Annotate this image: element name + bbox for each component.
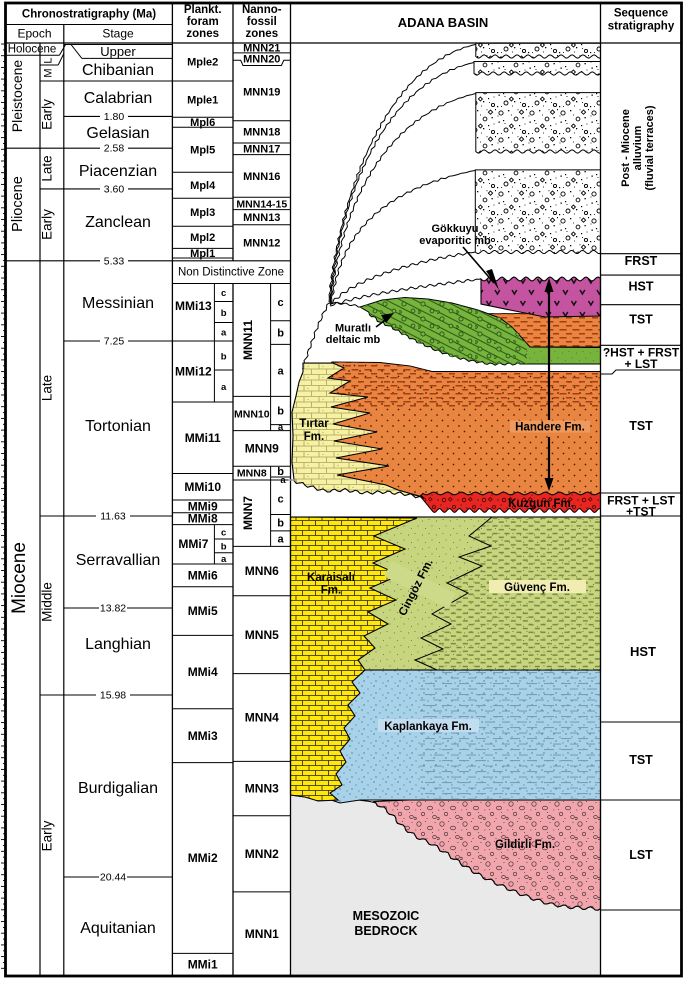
svg-text:zones: zones [246,28,279,40]
svg-text:MNN18: MNN18 [243,127,280,139]
svg-text:MMi6: MMi6 [188,569,218,583]
svg-text:Pliocene: Pliocene [10,176,26,232]
svg-text:MMi8: MMi8 [188,512,218,526]
svg-text:Handere Fm.: Handere Fm. [515,422,585,434]
svg-text:MNN20: MNN20 [243,54,280,66]
svg-text:Muratlı: Muratlı [335,323,371,335]
svg-text:c: c [278,297,284,309]
svg-text:MMi10: MMi10 [184,480,221,494]
svg-text:3.60: 3.60 [104,183,125,195]
svg-text:5.33: 5.33 [104,255,125,267]
svg-text:+ LST: + LST [624,357,658,371]
svg-text:foram: foram [187,16,219,28]
svg-text:b: b [221,308,227,319]
svg-text:a: a [278,366,285,378]
svg-text:Nanno-: Nanno- [242,4,282,16]
svg-text:Fm.: Fm. [321,585,341,597]
svg-text:Mpl1: Mpl1 [190,248,215,260]
svg-text:M: M [43,68,55,77]
svg-text:Holocene: Holocene [8,44,57,56]
svg-text:Early: Early [40,99,55,130]
svg-text:Mpl2: Mpl2 [190,232,215,244]
svg-text:b: b [277,406,284,418]
svg-text:MNN3: MNN3 [245,782,279,796]
svg-text:Kaplankaya Fm.: Kaplankaya Fm. [384,721,472,733]
svg-text:Early: Early [40,209,55,240]
svg-text:Langhian: Langhian [85,636,151,653]
svg-text:MNN11: MNN11 [241,320,255,360]
svg-text:evaporitic mb: evaporitic mb [419,235,491,247]
svg-text:MMi5: MMi5 [188,604,218,618]
svg-text:fossil: fossil [247,16,277,28]
svg-text:MNN12: MNN12 [243,238,280,250]
svg-text:MMi4: MMi4 [188,665,218,679]
svg-text:MNN14-15: MNN14-15 [236,198,287,210]
svg-text:13.82: 13.82 [100,603,126,615]
svg-text:deltaic mb: deltaic mb [326,334,381,346]
svg-text:MESOZOIC: MESOZOIC [353,909,420,923]
svg-text:Gökkuyu: Gökkuyu [431,223,478,235]
svg-text:a: a [278,422,284,433]
svg-text:a: a [278,534,285,546]
svg-text:b: b [221,542,227,553]
svg-text:Middle: Middle [40,582,55,622]
svg-text:Aquitanian: Aquitanian [80,920,156,937]
svg-text:HST: HST [630,644,656,659]
svg-text:MNN19: MNN19 [243,87,280,99]
svg-text:MMi11: MMi11 [185,431,221,445]
svg-text:+TST: +TST [626,505,656,519]
svg-text:Mpl4: Mpl4 [190,180,216,192]
svg-text:(fluvial terraces): (fluvial terraces) [644,105,656,190]
svg-text:a: a [280,475,286,486]
svg-text:Chronostratigraphy (Ma): Chronostratigraphy (Ma) [22,9,156,21]
svg-text:Non Distinctive Zone: Non Distinctive Zone [178,267,284,279]
svg-text:Plankt.: Plankt. [184,4,222,16]
svg-text:Mple1: Mple1 [187,95,218,107]
svg-text:MNN17: MNN17 [243,144,280,156]
svg-text:MNN6: MNN6 [245,564,279,578]
svg-text:c: c [278,494,284,506]
svg-text:Early: Early [40,820,55,851]
svg-text:Post - Miocene: Post - Miocene [620,109,632,187]
svg-text:TST: TST [629,313,653,327]
svg-text:20.44: 20.44 [100,872,126,884]
svg-text:Fm.: Fm. [304,431,324,443]
svg-text:1.80: 1.80 [104,111,125,123]
svg-text:2.58: 2.58 [104,143,125,155]
svg-text:7.25: 7.25 [104,336,125,348]
svg-text:Mpl3: Mpl3 [190,207,215,219]
svg-text:Sequence: Sequence [614,8,668,20]
svg-text:MMi2: MMi2 [188,851,218,865]
svg-text:LST: LST [629,848,653,862]
svg-text:MNN8: MNN8 [237,468,267,480]
svg-text:MNN7: MNN7 [241,496,255,530]
svg-text:b: b [277,328,284,340]
svg-text:a: a [221,554,227,565]
svg-text:TST: TST [629,419,653,433]
svg-text:Mple2: Mple2 [187,57,218,69]
svg-text:MNN10: MNN10 [234,409,270,421]
svg-text:TST: TST [629,753,653,767]
svg-text:MNN16: MNN16 [243,171,280,183]
svg-text:MNN1: MNN1 [245,927,279,941]
svg-text:Chibanian: Chibanian [82,62,154,79]
svg-text:c: c [221,288,226,299]
svg-text:b: b [221,352,227,363]
svg-text:Stage: Stage [102,27,134,41]
svg-text:zones: zones [186,28,219,40]
svg-text:MNN2: MNN2 [245,847,279,861]
svg-text:b: b [277,518,284,530]
svg-text:Pleistocene: Pleistocene [9,60,25,133]
svg-text:Messinian: Messinian [82,295,154,312]
svg-text:a: a [221,328,227,339]
svg-text:Kuzgun Fm.: Kuzgun Fm. [508,498,574,510]
svg-text:c: c [221,528,226,539]
svg-text:MNN9: MNN9 [245,442,279,456]
svg-text:BEDROCK: BEDROCK [354,924,417,938]
svg-text:MMi3: MMi3 [188,729,218,743]
svg-text:Tırtar: Tırtar [299,418,329,430]
svg-text:a: a [221,382,227,393]
svg-text:Epoch: Epoch [17,27,51,41]
svg-text:Mpl5: Mpl5 [190,145,215,157]
svg-text:MMi13: MMi13 [175,299,212,313]
svg-text:Zanclean: Zanclean [85,214,151,231]
svg-text:Mpl6: Mpl6 [190,117,215,129]
svg-text:Karaisalı: Karaisalı [307,572,355,584]
svg-text:MNN4: MNN4 [245,711,279,725]
svg-text:MMi12: MMi12 [175,365,212,379]
svg-text:alluvium: alluvium [632,125,644,170]
svg-text:15.98: 15.98 [100,690,126,702]
svg-text:Serravallian: Serravallian [76,552,160,569]
svg-text:Burdigalian: Burdigalian [78,780,158,797]
svg-text:MNN5: MNN5 [245,628,279,642]
svg-text:11.63: 11.63 [100,511,126,523]
svg-text:MMi1: MMi1 [188,958,218,972]
svg-text:MMi7: MMi7 [178,537,208,551]
svg-text:Late: Late [40,155,55,181]
svg-text:Miocene: Miocene [9,542,30,614]
svg-text:MNN13: MNN13 [243,212,280,224]
svg-text:Calabrian: Calabrian [84,90,152,107]
svg-text:Late: Late [40,375,55,401]
svg-text:Upper: Upper [100,44,136,59]
svg-text:stratigraphy: stratigraphy [608,21,675,33]
svg-text:HST: HST [629,280,654,294]
svg-text:FRST: FRST [625,254,658,268]
svg-text:Güvenç Fm.: Güvenç Fm. [504,582,570,594]
svg-text:ADANA BASIN: ADANA BASIN [398,15,489,30]
svg-text:L: L [43,57,55,63]
svg-text:Gildirli Fm.: Gildirli Fm. [495,839,555,851]
svg-text:Gelasian: Gelasian [86,125,149,142]
svg-text:Piacenzian: Piacenzian [79,163,157,180]
svg-text:Tortonian: Tortonian [85,418,151,435]
